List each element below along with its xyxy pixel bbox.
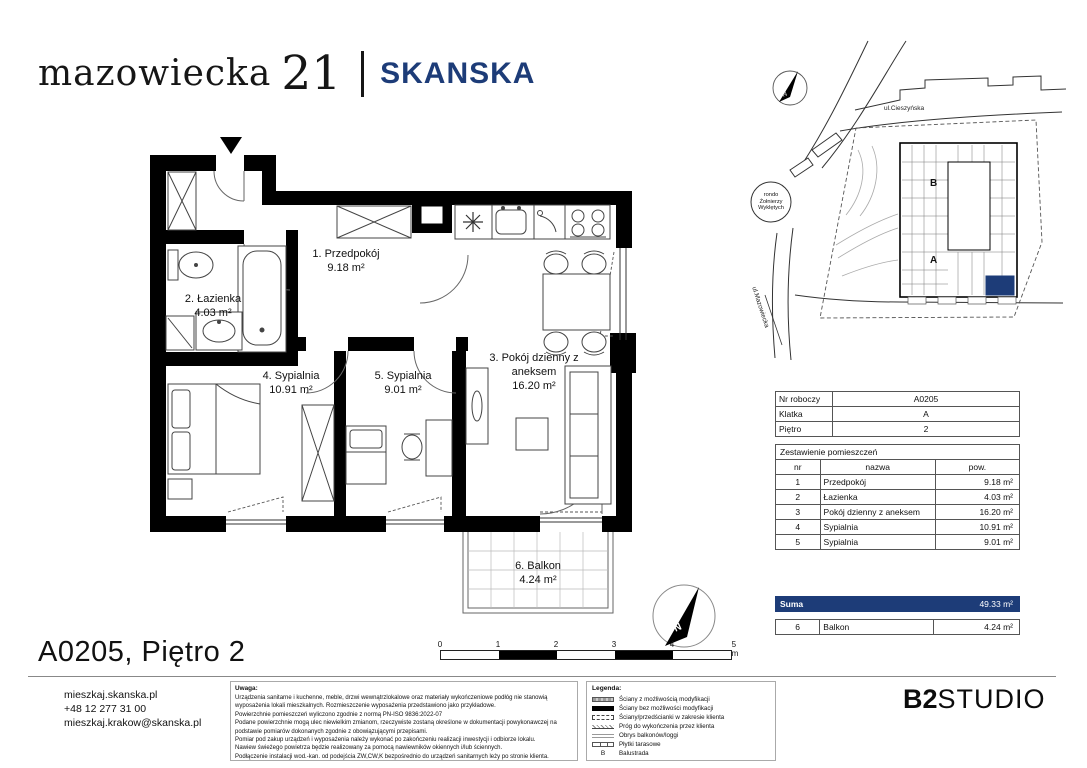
stair-b-label: B bbox=[930, 178, 937, 189]
bedroom5-furniture bbox=[346, 420, 452, 484]
floorplan-sheet: { "header": { "logo_name": "mazowiecka",… bbox=[0, 0, 1087, 768]
legend-item: Ściany/przedścianki w zakresie klienta bbox=[592, 713, 770, 722]
wall-client-symbol bbox=[592, 715, 614, 720]
scale-bar: 0 1 2 3 4 5 m bbox=[440, 640, 740, 660]
footer-divider bbox=[28, 676, 1056, 677]
brand-logo: SKANSKA bbox=[380, 57, 535, 91]
room-label-sypialnia5: 5. Sypialnia 9.01 m² bbox=[338, 370, 468, 398]
legend-item: Ściany bez możliwości modyfikacji bbox=[592, 704, 770, 713]
project-logo-number: 21 bbox=[281, 46, 341, 101]
note-line: Podane powierzchnie mogą ulec niewielkim… bbox=[235, 719, 573, 736]
note-line: Powierzchnie pomieszczeń wyliczono zgodn… bbox=[235, 711, 573, 719]
table-row: 1 Przedpokój 9.18 m² bbox=[776, 475, 1020, 490]
suma-value: 49.33 m² bbox=[979, 599, 1020, 609]
entrance-arrow bbox=[220, 137, 242, 154]
apartment-title: A0205, Piętro 2 bbox=[38, 636, 245, 669]
note-line: Podłączenie instalacji wod.-kan. od pode… bbox=[235, 753, 573, 761]
rooms-table-title: Zestawienie pomieszczeń bbox=[776, 445, 1020, 460]
note-line: Pomiar pod zakup urządzeń i wyposażenia … bbox=[235, 736, 573, 744]
suma-label: Suma bbox=[775, 599, 803, 609]
balcony-outline-symbol bbox=[592, 734, 614, 738]
legend-item: B Balustrada bbox=[592, 749, 770, 758]
scalebar-compass: N bbox=[653, 585, 715, 647]
scale-bar-ticks: 0 1 2 3 4 5 m bbox=[440, 640, 740, 650]
header-logo: mazowiecka 21 SKANSKA bbox=[38, 46, 535, 101]
table-row: 6 Balkon 4.24 m² bbox=[776, 620, 1020, 635]
room-label-przedpokoj: 1. Przedpokój 9.18 m² bbox=[281, 248, 411, 276]
contact-website: mieszkaj.skanska.pl bbox=[64, 688, 201, 702]
shaft-opening bbox=[421, 206, 443, 224]
rooms-table-header: nr nazwa pow. bbox=[776, 460, 1020, 475]
sink bbox=[496, 210, 526, 234]
legend-item: Obrys balkonów/loggi bbox=[592, 731, 770, 740]
site-building: B A bbox=[900, 143, 1017, 304]
fridge-icon bbox=[463, 212, 483, 232]
legend-box: Legenda: Ściany z możliwością modyfikacj… bbox=[586, 681, 776, 761]
contact-block: mieszkaj.skanska.pl +48 12 277 31 00 mie… bbox=[64, 688, 201, 731]
project-logo-text: mazowiecka bbox=[38, 53, 271, 94]
stair-a-label: A bbox=[930, 255, 937, 266]
wall-modifiable-symbol bbox=[592, 697, 614, 702]
site-plan: B A N bbox=[751, 41, 1066, 360]
kitchen bbox=[455, 205, 610, 239]
street-label-cieszynska: ul.Cieszyńska bbox=[884, 105, 924, 112]
highlighted-unit bbox=[986, 276, 1014, 295]
table-row: Piętro 2 bbox=[776, 422, 1020, 437]
legend-title: Legenda: bbox=[592, 685, 770, 692]
studio-logo: B2STUDIO bbox=[903, 684, 1046, 715]
note-line: Urządzenia sanitarne i kuchenne, meble, … bbox=[235, 694, 573, 711]
table-row: Nr roboczy A0205 bbox=[776, 392, 1020, 407]
suma-bar: Suma 49.33 m² bbox=[775, 596, 1020, 612]
table-row: Klatka A bbox=[776, 407, 1020, 422]
scale-bar-segments bbox=[440, 650, 732, 660]
bedroom4-furniture bbox=[168, 384, 260, 499]
logo-divider bbox=[361, 51, 364, 97]
table-row: 3 Pokój dzienny z aneksem 16.20 m² bbox=[776, 505, 1020, 520]
legend-item: Płytki tarasowe bbox=[592, 740, 770, 749]
room-label-sypialnia4: 4. Sypialnia 10.91 m² bbox=[226, 370, 356, 398]
notes-title: Uwaga: bbox=[235, 685, 573, 694]
balcony-table: 6 Balkon 4.24 m² bbox=[775, 619, 1020, 635]
unit-info-table: Nr roboczy A0205 Klatka A Piętro 2 bbox=[775, 391, 1020, 437]
roundabout-label: rondo Żołnierzy Wyklętych bbox=[748, 192, 794, 212]
notes-box: Uwaga: Urządzenia sanitarne i kuchenne, … bbox=[230, 681, 578, 761]
note-line: Nawiew świeżego powietrza będzie realizo… bbox=[235, 744, 573, 752]
contact-email: mieszkaj.krakow@skanska.pl bbox=[64, 716, 201, 730]
rooms-table: Zestawienie pomieszczeń nr nazwa pow. 1 … bbox=[775, 444, 1020, 550]
contact-phone: +48 12 277 31 00 bbox=[64, 702, 201, 716]
room-label-balkon: 6. Balkon 4.24 m² bbox=[473, 560, 603, 588]
site-walkways bbox=[836, 146, 898, 276]
site-compass: N bbox=[773, 71, 807, 105]
room-label-pokoj-dzienny: 3. Pokój dzienny z aneksem 16.20 m² bbox=[474, 352, 594, 393]
threshold-symbol bbox=[592, 725, 614, 729]
legend-item: Ściany z możliwością modyfikacji bbox=[592, 695, 770, 704]
legend-item: Próg do wykończenia przez klienta bbox=[592, 722, 770, 731]
table-row: 2 Łazienka 4.03 m² bbox=[776, 490, 1020, 505]
table-row: 4 Sypialnia 10.91 m² bbox=[776, 520, 1020, 535]
room-label-lazienka: 2. Łazienka 4.03 m² bbox=[153, 293, 273, 321]
terrace-tiles-symbol bbox=[592, 742, 614, 747]
table-row: 5 Sypialnia 9.01 m² bbox=[776, 535, 1020, 550]
dining-set bbox=[543, 251, 610, 355]
balustrade-symbol: B bbox=[592, 751, 614, 756]
wall-fixed-symbol bbox=[592, 706, 614, 711]
